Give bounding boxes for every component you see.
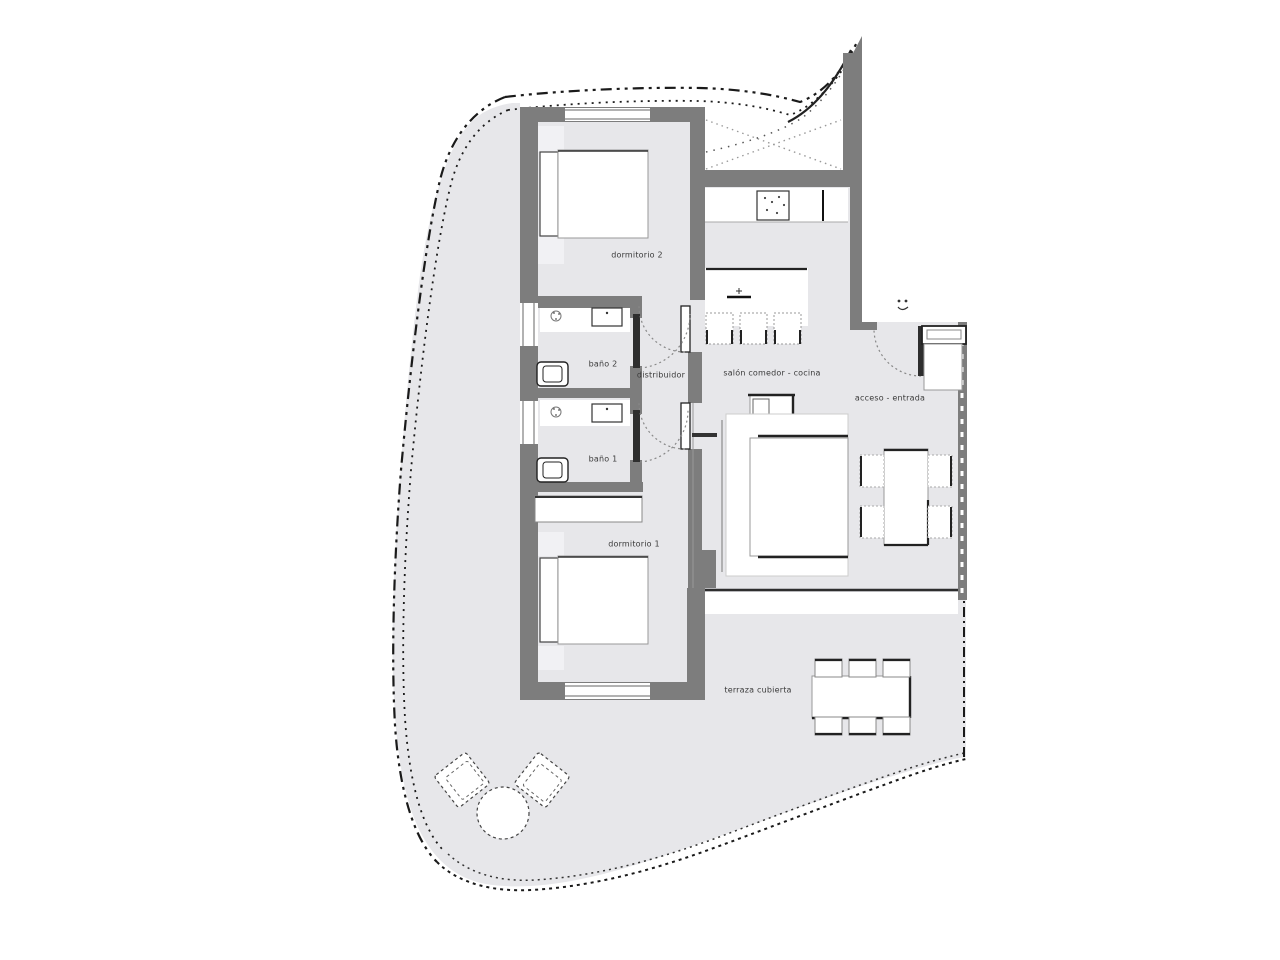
room-label-bath1: baño 1: [589, 455, 618, 464]
bed-icon: [558, 556, 648, 644]
room-label-entry: acceso - entrada: [855, 394, 925, 403]
dining-table-icon: [884, 449, 928, 545]
sofa-icon: [722, 414, 848, 576]
terrace-step-strip: [693, 592, 958, 614]
room-label-bath2: baño 2: [589, 360, 618, 369]
sink-icon: [592, 404, 622, 422]
terrace-dining-set: [812, 659, 910, 735]
door-leaf-icon: [633, 410, 640, 462]
closet-icon: [922, 326, 966, 344]
closet-icon: [924, 344, 962, 390]
room-label-bedroom2: dormitorio 2: [611, 251, 663, 260]
room-label-bedroom1: dormitorio 1: [608, 540, 660, 549]
sink-icon: [592, 308, 622, 326]
outdoor-round-table-icon: [477, 787, 529, 839]
ventilation-shaft: [706, 120, 841, 169]
outdoor-table-icon: [812, 676, 910, 718]
door-leaf-icon: [633, 314, 640, 368]
door-leaf-icon: [681, 306, 690, 352]
floor-plan-drawing: [0, 0, 1280, 960]
bed-headboard-icon: [540, 558, 558, 642]
room-label-terrace: terraza cubierta: [724, 686, 791, 695]
room-label-living: salón comedor - cocina: [723, 369, 820, 378]
doorbell-icon: [898, 300, 908, 310]
wardrobe-icon: [535, 496, 642, 522]
room-label-hall: distribuidor: [637, 371, 685, 380]
bar-stool-icon: [706, 313, 801, 344]
floor-plan: dormitorio 2 baño 2 distribuidor salón c…: [0, 0, 1280, 960]
